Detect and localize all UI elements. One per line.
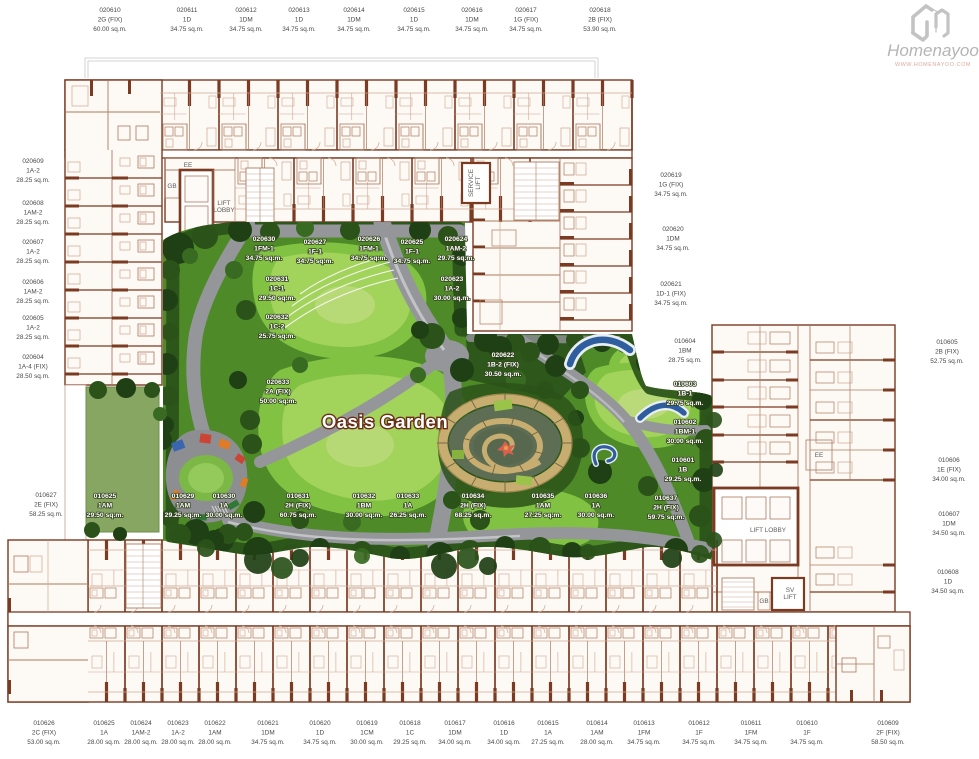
svg-text:27.25 sq.m.: 27.25 sq.m. [531, 739, 565, 746]
svg-text:1AM: 1AM [590, 729, 603, 736]
svg-text:020612: 020612 [235, 7, 257, 14]
svg-text:30.00 sq.m.: 30.00 sq.m. [350, 739, 384, 746]
svg-text:27.25 sq.m.: 27.25 sq.m. [525, 512, 562, 519]
svg-text:1A: 1A [220, 503, 229, 510]
svg-text:58.25 sq.m.: 58.25 sq.m. [29, 511, 63, 518]
svg-text:010632: 010632 [353, 493, 376, 500]
svg-text:53.90 sq.m.: 53.90 sq.m. [583, 26, 617, 33]
svg-text:59.75 sq.m.: 59.75 sq.m. [648, 514, 685, 521]
svg-text:020624: 020624 [445, 236, 468, 243]
svg-text:26.25 sq.m.: 26.25 sq.m. [390, 512, 427, 519]
svg-text:1F: 1F [695, 729, 703, 736]
svg-text:1D: 1D [316, 729, 325, 736]
svg-text:1B: 1B [679, 467, 688, 474]
svg-text:1A-4 (FIX): 1A-4 (FIX) [18, 363, 47, 370]
svg-text:010620: 010620 [309, 720, 331, 727]
svg-text:1AM: 1AM [98, 503, 113, 510]
svg-text:010617: 010617 [444, 720, 466, 727]
svg-text:1FM: 1FM [638, 729, 651, 736]
svg-text:1AM-2: 1AM-2 [132, 729, 151, 736]
svg-text:34.75 sq.m.: 34.75 sq.m. [397, 26, 431, 33]
svg-text:34.75 sq.m.: 34.75 sq.m. [282, 26, 316, 33]
svg-text:28.00 sq.m.: 28.00 sq.m. [87, 739, 121, 746]
svg-text:010605: 010605 [936, 339, 958, 346]
svg-text:020608: 020608 [22, 200, 44, 207]
svg-text:020611: 020611 [177, 7, 198, 14]
svg-text:010602: 010602 [674, 419, 697, 426]
svg-text:1D: 1D [944, 578, 953, 585]
svg-text:52.75 sq.m.: 52.75 sq.m. [930, 358, 964, 365]
svg-text:53.00 sq.m.: 53.00 sq.m. [27, 739, 61, 746]
svg-text:28.00 sq.m.: 28.00 sq.m. [124, 739, 158, 746]
svg-text:010626: 010626 [33, 720, 55, 727]
svg-text:020621: 020621 [660, 281, 682, 288]
svg-text:34.75 sq.m.: 34.75 sq.m. [654, 300, 688, 307]
svg-text:25.75 sq.m.: 25.75 sq.m. [259, 333, 296, 340]
svg-text:020627: 020627 [304, 239, 327, 246]
svg-text:SERVICE: SERVICE [468, 169, 475, 197]
svg-text:010601: 010601 [672, 457, 695, 464]
svg-text:WWW.HOMENAYOO.COM: WWW.HOMENAYOO.COM [895, 62, 971, 68]
svg-text:020614: 020614 [343, 7, 365, 14]
svg-text:28.25 sq.m.: 28.25 sq.m. [16, 298, 50, 305]
svg-text:34.50 sq.m.: 34.50 sq.m. [931, 588, 965, 595]
svg-text:020631: 020631 [266, 276, 289, 283]
svg-text:010609: 010609 [877, 720, 899, 727]
svg-text:LIFT: LIFT [475, 176, 482, 189]
svg-text:34.75 sq.m.: 34.75 sq.m. [251, 739, 285, 746]
svg-text:010630: 010630 [213, 493, 236, 500]
svg-text:1B-1: 1B-1 [678, 391, 693, 398]
svg-text:2H (FIX): 2H (FIX) [653, 505, 679, 512]
svg-text:EE: EE [815, 452, 824, 459]
svg-text:1C-1: 1C-1 [270, 286, 285, 293]
svg-text:28.00 sq.m.: 28.00 sq.m. [580, 739, 614, 746]
svg-text:2B (FIX): 2B (FIX) [935, 348, 959, 355]
svg-text:020605: 020605 [22, 315, 44, 322]
svg-text:010633: 010633 [397, 493, 420, 500]
svg-text:30.50 sq.m.: 30.50 sq.m. [485, 371, 522, 378]
svg-text:1D: 1D [295, 16, 304, 23]
svg-text:1A-2: 1A-2 [26, 167, 40, 174]
svg-text:1BM: 1BM [678, 347, 691, 354]
svg-text:1A: 1A [592, 503, 601, 510]
svg-text:34.75 sq.m.: 34.75 sq.m. [734, 739, 768, 746]
svg-text:68.25 sq.m.: 68.25 sq.m. [455, 512, 492, 519]
svg-text:1D: 1D [410, 16, 419, 23]
svg-text:1DM: 1DM [347, 16, 361, 23]
svg-text:010610: 010610 [796, 720, 818, 727]
svg-text:1C-2: 1C-2 [270, 324, 285, 331]
svg-text:29.25 sq.m.: 29.25 sq.m. [393, 739, 427, 746]
svg-text:020604: 020604 [22, 354, 44, 361]
svg-text:010631: 010631 [287, 493, 310, 500]
svg-text:1FM: 1FM [745, 729, 758, 736]
svg-text:29.75 sq.m.: 29.75 sq.m. [667, 400, 704, 407]
svg-text:020622: 020622 [492, 352, 515, 359]
svg-text:2E (FIX): 2E (FIX) [34, 501, 58, 508]
svg-text:020607: 020607 [22, 239, 44, 246]
svg-text:30.00 sq.m.: 30.00 sq.m. [206, 512, 243, 519]
svg-text:1AM: 1AM [176, 503, 191, 510]
svg-text:1G (FIX): 1G (FIX) [514, 16, 539, 23]
svg-text:010627: 010627 [35, 492, 57, 499]
svg-text:010614: 010614 [586, 720, 608, 727]
svg-text:1F-1: 1F-1 [405, 249, 419, 256]
svg-text:28.75 sq.m.: 28.75 sq.m. [668, 357, 702, 364]
svg-text:010636: 010636 [585, 493, 608, 500]
svg-text:1F-1: 1F-1 [308, 249, 322, 256]
svg-text:29.75 sq.m.: 29.75 sq.m. [438, 255, 475, 262]
svg-text:34.75 sq.m.: 34.75 sq.m. [394, 258, 431, 265]
svg-text:1DM: 1DM [666, 235, 680, 242]
svg-text:1E (FIX): 1E (FIX) [937, 466, 961, 473]
svg-text:GB: GB [167, 183, 176, 190]
svg-text:020625: 020625 [401, 239, 424, 246]
svg-text:010625: 010625 [94, 493, 117, 500]
svg-text:30.00 sq.m.: 30.00 sq.m. [578, 512, 615, 519]
svg-text:020606: 020606 [22, 279, 44, 286]
svg-text:1B-2 (FIX): 1B-2 (FIX) [487, 362, 519, 369]
svg-text:010625: 010625 [93, 720, 115, 727]
svg-text:010637: 010637 [655, 495, 678, 502]
svg-text:020617: 020617 [515, 7, 537, 14]
svg-text:1DM: 1DM [448, 729, 462, 736]
svg-text:1CM: 1CM [360, 729, 374, 736]
svg-text:30.00 sq.m.: 30.00 sq.m. [434, 295, 471, 302]
svg-text:020623: 020623 [441, 276, 464, 283]
svg-text:34.75 sq.m.: 34.75 sq.m. [297, 258, 334, 265]
svg-text:LIFT: LIFT [217, 200, 230, 207]
svg-text:1DM: 1DM [261, 729, 275, 736]
svg-text:GB: GB [759, 598, 768, 605]
svg-text:34.50 sq.m.: 34.50 sq.m. [932, 530, 966, 537]
svg-text:28.25 sq.m.: 28.25 sq.m. [16, 177, 50, 184]
svg-text:010635: 010635 [532, 493, 555, 500]
svg-text:58.50 sq.m.: 58.50 sq.m. [871, 739, 905, 746]
svg-text:2H (FIX): 2H (FIX) [460, 503, 486, 510]
svg-text:34.75 sq.m.: 34.75 sq.m. [170, 26, 204, 33]
svg-text:1DM: 1DM [239, 16, 253, 23]
svg-text:28.50 sq.m.: 28.50 sq.m. [16, 373, 50, 380]
svg-text:34.00 sq.m.: 34.00 sq.m. [438, 739, 472, 746]
svg-text:EE: EE [184, 162, 193, 169]
svg-text:010623: 010623 [167, 720, 189, 727]
svg-text:020616: 020616 [461, 7, 483, 14]
svg-text:1A: 1A [544, 729, 553, 736]
svg-text:Homenayoo: Homenayoo [887, 41, 979, 60]
svg-text:010606: 010606 [938, 457, 960, 464]
svg-text:34.75 sq.m.: 34.75 sq.m. [654, 191, 688, 198]
svg-text:1AM: 1AM [208, 729, 221, 736]
svg-text:34.75 sq.m.: 34.75 sq.m. [455, 26, 489, 33]
svg-text:1FM-1: 1FM-1 [359, 246, 379, 253]
svg-text:020620: 020620 [662, 226, 684, 233]
svg-text:2C (FIX): 2C (FIX) [32, 729, 56, 736]
svg-text:29.25 sq.m.: 29.25 sq.m. [665, 476, 702, 483]
svg-text:28.00 sq.m.: 28.00 sq.m. [161, 739, 195, 746]
svg-text:34.75 sq.m.: 34.75 sq.m. [682, 739, 716, 746]
svg-text:020632: 020632 [266, 314, 289, 321]
svg-text:020609: 020609 [22, 158, 44, 165]
svg-text:020630: 020630 [253, 236, 276, 243]
svg-text:34.75 sq.m.: 34.75 sq.m. [627, 739, 661, 746]
svg-text:020626: 020626 [358, 236, 381, 243]
svg-text:010618: 010618 [399, 720, 421, 727]
svg-text:60.75 sq.m.: 60.75 sq.m. [280, 512, 317, 519]
svg-text:Oasis Garden: Oasis Garden [322, 411, 448, 432]
svg-text:020619: 020619 [660, 172, 682, 179]
svg-text:010629: 010629 [172, 493, 195, 500]
svg-text:2A (FIX): 2A (FIX) [265, 389, 290, 396]
svg-text:2G (FIX): 2G (FIX) [98, 16, 123, 23]
svg-text:28.25 sq.m.: 28.25 sq.m. [16, 258, 50, 265]
svg-text:34.75 sq.m.: 34.75 sq.m. [229, 26, 263, 33]
svg-text:2B (FIX): 2B (FIX) [588, 16, 612, 23]
svg-text:020618: 020618 [589, 7, 611, 14]
svg-text:28.00 sq.m.: 28.00 sq.m. [198, 739, 232, 746]
svg-text:29.50 sq.m.: 29.50 sq.m. [259, 295, 296, 302]
svg-text:1A-2: 1A-2 [26, 248, 40, 255]
svg-text:1AM-2: 1AM-2 [24, 288, 43, 295]
svg-text:010611: 010611 [741, 720, 762, 727]
svg-text:34.75 sq.m.: 34.75 sq.m. [337, 26, 371, 33]
svg-text:1A-2: 1A-2 [26, 324, 40, 331]
svg-text:34.00 sq.m.: 34.00 sq.m. [487, 739, 521, 746]
svg-text:020615: 020615 [403, 7, 425, 14]
svg-text:34.75 sq.m.: 34.75 sq.m. [351, 255, 388, 262]
svg-text:010607: 010607 [938, 511, 960, 518]
svg-text:1AM-2: 1AM-2 [446, 246, 467, 253]
svg-text:SV: SV [786, 587, 795, 594]
svg-text:29.50 sq.m.: 29.50 sq.m. [87, 512, 124, 519]
svg-text:1D: 1D [500, 729, 509, 736]
svg-text:010613: 010613 [633, 720, 655, 727]
svg-text:1A: 1A [404, 503, 413, 510]
svg-text:1BM: 1BM [357, 503, 372, 510]
svg-text:020633: 020633 [267, 379, 290, 386]
svg-text:34.75 sq.m.: 34.75 sq.m. [246, 255, 283, 262]
svg-text:34.75 sq.m.: 34.75 sq.m. [790, 739, 824, 746]
svg-text:34.75 sq.m.: 34.75 sq.m. [509, 26, 543, 33]
svg-text:30.00 sq.m.: 30.00 sq.m. [346, 512, 383, 519]
svg-text:34.00 sq.m.: 34.00 sq.m. [932, 476, 966, 483]
svg-text:1AM: 1AM [536, 503, 551, 510]
svg-text:60.00 sq.m.: 60.00 sq.m. [93, 26, 127, 33]
svg-text:1BM-1: 1BM-1 [675, 429, 696, 436]
svg-text:1F: 1F [803, 729, 811, 736]
svg-text:28.25 sq.m.: 28.25 sq.m. [16, 334, 50, 341]
svg-text:28.25 sq.m.: 28.25 sq.m. [16, 219, 50, 226]
svg-text:1A-2: 1A-2 [171, 729, 185, 736]
svg-text:010603: 010603 [674, 381, 697, 388]
svg-text:010616: 010616 [493, 720, 515, 727]
svg-text:LIFT LOBBY: LIFT LOBBY [750, 527, 787, 534]
svg-text:1A: 1A [100, 729, 109, 736]
svg-text:010604: 010604 [674, 338, 696, 345]
svg-text:LOBBY: LOBBY [213, 207, 235, 214]
svg-text:010608: 010608 [937, 569, 959, 576]
svg-text:1DM: 1DM [465, 16, 479, 23]
svg-text:30.00 sq.m.: 30.00 sq.m. [667, 438, 704, 445]
svg-text:2H (FIX): 2H (FIX) [285, 503, 311, 510]
svg-text:34.75 sq.m.: 34.75 sq.m. [656, 245, 690, 252]
svg-text:1FM-1: 1FM-1 [254, 246, 274, 253]
svg-text:010619: 010619 [356, 720, 378, 727]
svg-text:010634: 010634 [462, 493, 485, 500]
svg-text:1C: 1C [406, 729, 415, 736]
svg-text:020613: 020613 [288, 7, 310, 14]
svg-text:1AM-2: 1AM-2 [24, 209, 43, 216]
svg-text:1DM: 1DM [942, 520, 956, 527]
svg-text:010612: 010612 [688, 720, 710, 727]
svg-text:34.75 sq.m.: 34.75 sq.m. [303, 739, 337, 746]
svg-text:1D-1 (FIX): 1D-1 (FIX) [656, 290, 686, 297]
svg-text:29.25 sq.m.: 29.25 sq.m. [165, 512, 202, 519]
svg-text:1G (FIX): 1G (FIX) [659, 181, 684, 188]
svg-text:010615: 010615 [537, 720, 559, 727]
svg-text:2F (FIX): 2F (FIX) [876, 729, 899, 736]
svg-text:020610: 020610 [99, 7, 121, 14]
svg-text:010624: 010624 [130, 720, 152, 727]
svg-text:50.00 sq.m.: 50.00 sq.m. [260, 398, 297, 405]
svg-text:010622: 010622 [204, 720, 226, 727]
svg-text:1A-2: 1A-2 [445, 286, 460, 293]
svg-text:010621: 010621 [257, 720, 279, 727]
svg-text:1D: 1D [183, 16, 192, 23]
svg-text:LIFT: LIFT [783, 594, 796, 601]
